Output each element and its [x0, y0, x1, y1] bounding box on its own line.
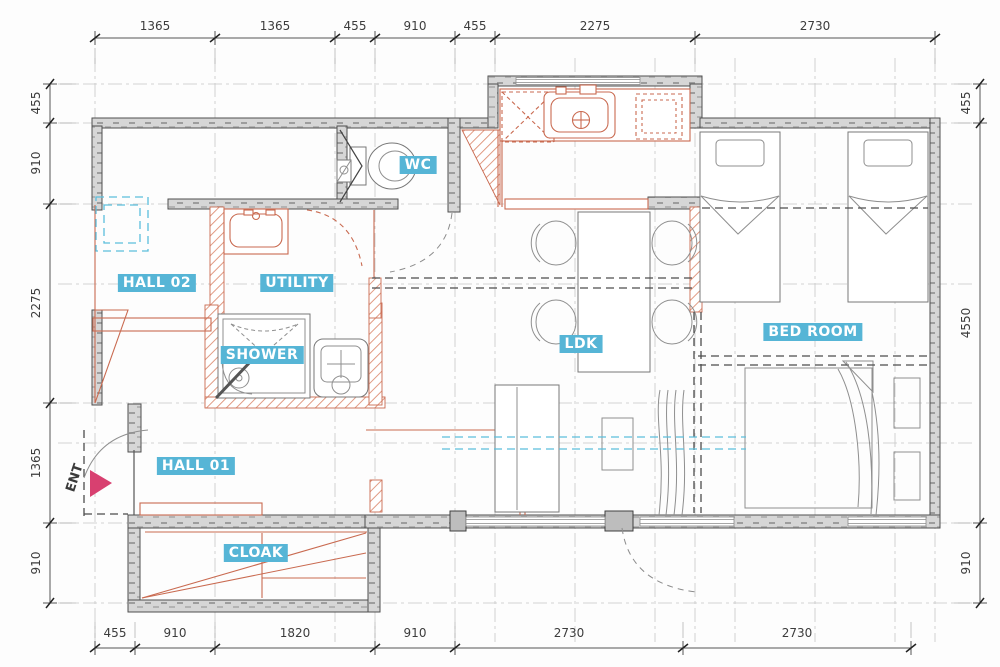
dim-left-3: 1365	[29, 448, 43, 479]
dim-bottom-4: 2730	[554, 626, 585, 640]
dim-bottom-0: 455	[104, 626, 127, 640]
dim-bottom-1: 910	[164, 626, 187, 640]
room-label-wc: WC	[400, 156, 437, 174]
utility-vanity-icon	[224, 209, 288, 254]
utility-door-arc	[307, 210, 362, 266]
dim-right-0: 455	[959, 92, 973, 115]
single-bed-icon	[848, 132, 928, 302]
dim-left-1: 910	[29, 152, 43, 175]
washing-machine-icon	[314, 339, 368, 397]
room-label-hall-01: HALL 01	[157, 457, 235, 475]
dim-bottom-5: 2730	[782, 626, 813, 640]
dim-left-2: 2275	[29, 288, 43, 319]
kitchen-counter	[500, 85, 690, 142]
dim-left-0: 455	[29, 92, 43, 115]
dining-set-icon	[531, 212, 697, 372]
room-label-hall-02: HALL 02	[118, 274, 196, 292]
dim-top-3: 910	[404, 19, 427, 33]
single-bed-icon	[700, 132, 780, 302]
dim-right-2: 910	[959, 552, 973, 575]
room-label-utility: UTILITY	[260, 274, 333, 292]
grid-centerlines	[58, 58, 974, 642]
dim-top-1: 1365	[260, 19, 291, 33]
kitchen-sink-icon	[544, 92, 615, 138]
room-label-cloak: CLOAK	[224, 544, 288, 562]
room-label-shower: SHOWER	[221, 346, 304, 364]
curtain-icon	[658, 390, 684, 515]
double-bed-icon	[745, 361, 920, 515]
dim-top-6: 2730	[800, 19, 831, 33]
room-label-bed-room: BED ROOM	[763, 323, 862, 341]
room-label-ldk: LDK	[560, 335, 603, 353]
dim-top-4: 455	[464, 19, 487, 33]
dim-bottom-3: 910	[404, 626, 427, 640]
dim-left-4: 910	[29, 552, 43, 575]
dim-top-2: 455	[344, 19, 367, 33]
dim-top-5: 2275	[580, 19, 611, 33]
side-table-icon	[602, 418, 633, 470]
floor-plan: WC HALL 02 UTILITY SHOWER HALL 01 CLOAK …	[0, 0, 1000, 667]
entrance-arrow-icon	[90, 470, 112, 497]
bedside-cabinet-icon	[894, 452, 920, 500]
bedroom-door-arc	[622, 528, 696, 592]
ldk-door-arc	[390, 213, 452, 272]
dim-bottom-2: 1820	[280, 626, 311, 640]
dim-top-0: 1365	[140, 19, 171, 33]
dim-right-1: 4550	[959, 308, 973, 339]
